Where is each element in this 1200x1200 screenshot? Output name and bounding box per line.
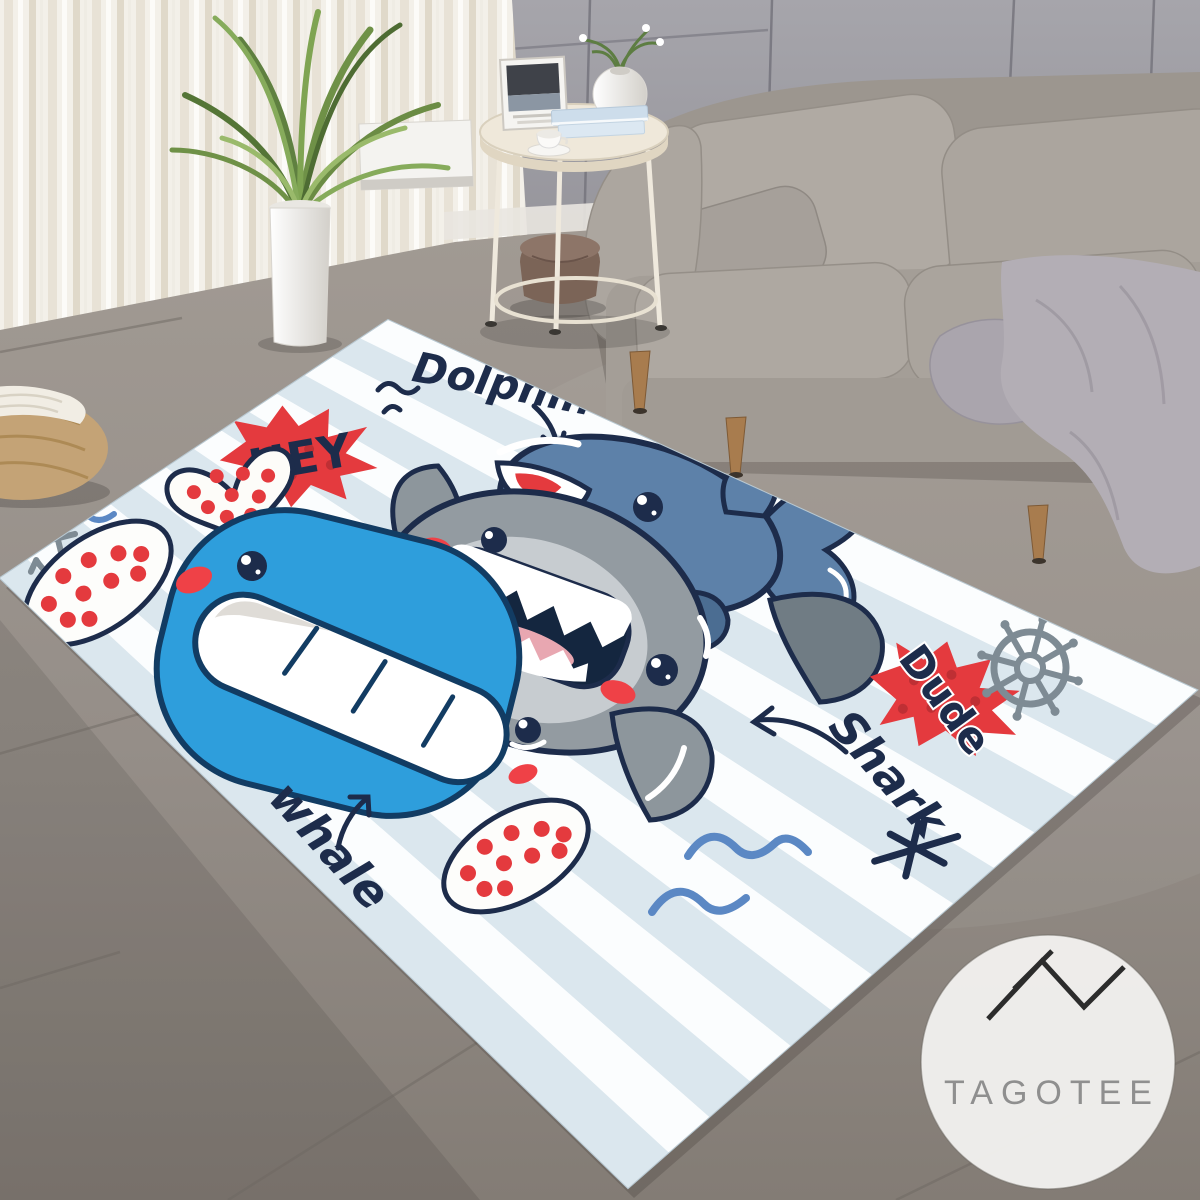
- seat-cushion-left: [633, 261, 915, 391]
- brand-name: TAGOTEE: [944, 1074, 1160, 1112]
- scene-svg: HEY Dolphin: [0, 0, 1200, 1200]
- book-stack: [551, 106, 648, 139]
- dolphin-eye: [633, 492, 663, 522]
- whale-right-eye: [515, 717, 541, 743]
- shark-left-eye: [481, 527, 507, 553]
- living-room-product-photo: HEY Dolphin: [0, 0, 1200, 1200]
- shark-right-eye: [646, 654, 678, 686]
- watermark-badge: TAGOTEE: [921, 935, 1175, 1189]
- whale-left-eye: [237, 551, 267, 581]
- tall-white-vase: [270, 208, 330, 346]
